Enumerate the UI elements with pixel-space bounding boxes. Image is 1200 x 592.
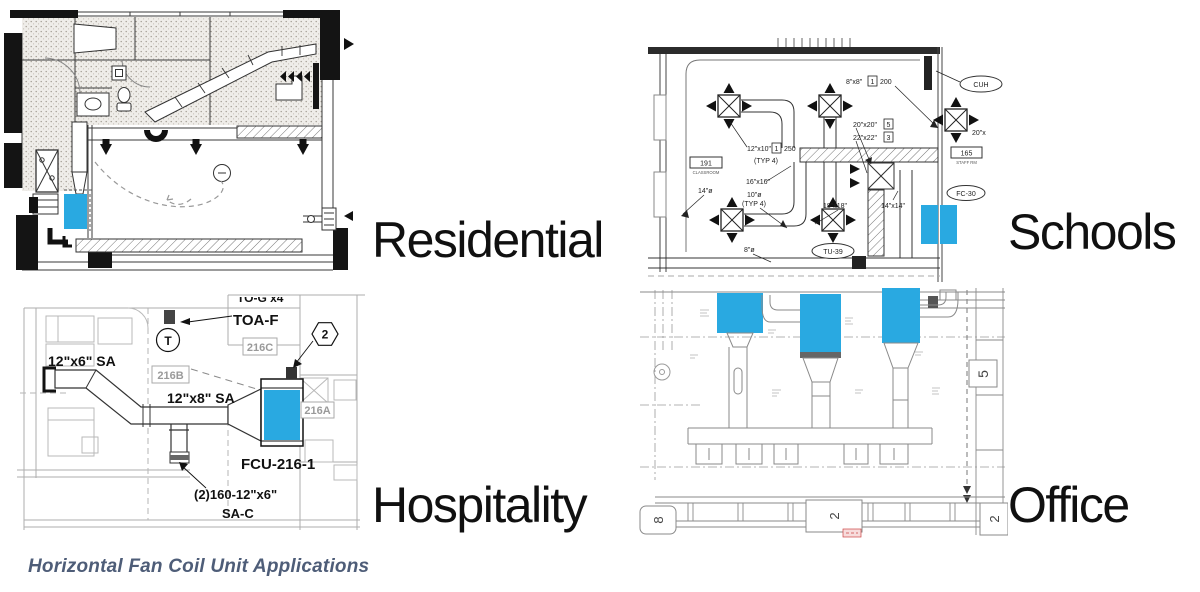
room-number: 165	[961, 151, 973, 158]
fan-coil-highlight	[717, 293, 763, 333]
room-name: STAFF RM	[956, 160, 977, 165]
branch-duct	[169, 424, 189, 452]
grid-number: 8	[651, 516, 666, 523]
flow-arrow-icon	[344, 211, 353, 221]
grid-number: 2	[827, 512, 842, 519]
diffuser-type-tag: 1	[871, 79, 875, 86]
duct-size-label: 16"x16"	[746, 179, 771, 186]
duct-size-label: 12"x10"	[747, 146, 772, 153]
duct-size-label: 8"ø	[744, 247, 755, 254]
clipped-top-label: TO-G x4	[237, 291, 284, 305]
room-number: 191	[700, 161, 712, 168]
grid-number: 2	[987, 515, 1002, 522]
residential-floor-plan	[0, 0, 360, 290]
hospitality-floor-plan: T 2 216C 216B 216A 12"x6" SA 12"x8" SA T…	[10, 288, 375, 540]
room-number: 216A	[304, 405, 330, 417]
fc-label: FC-30	[956, 191, 976, 198]
tu-label: TU-39	[823, 249, 843, 256]
toilet	[118, 88, 130, 103]
office-floor-plan: 5 8 2 2	[628, 283, 1008, 548]
keyed-note-tag: 5	[887, 122, 891, 129]
duct-size-label: 10"ø	[747, 192, 762, 199]
room-name: CLASSROOM	[693, 170, 720, 175]
fan-coil-highlight	[921, 205, 938, 244]
duct-size-label: 18"x18"	[823, 203, 848, 210]
window	[654, 95, 666, 140]
ceiling-diffusers	[100, 139, 309, 155]
toaf-label: TOA-F	[233, 312, 279, 329]
cfm-label: 200	[880, 79, 892, 86]
sensor-device	[164, 310, 175, 324]
fan-coil-highlight	[64, 194, 87, 229]
duct-size-label: 14"x14"	[881, 203, 906, 210]
figure-horizontal-fan-coil-applications: 12"x10" 1 250 (TYP 4) 16"x16" 14"ø 10"ø …	[0, 0, 1200, 592]
unit-tag-label: FCU-216-1	[241, 456, 315, 473]
duct-size-label: 8"x8"	[846, 79, 863, 86]
grid-number: 5	[975, 370, 991, 378]
duct-size-label: 22"x22"	[853, 135, 878, 142]
column-bubble	[654, 364, 670, 380]
linear-diffuser-band	[76, 239, 302, 252]
diffuser-type-tag: 1	[775, 146, 779, 153]
cuh-label: CUH	[973, 82, 988, 89]
exhaust-fan	[112, 66, 126, 80]
duct-end-cap	[44, 368, 56, 391]
grille-note-label2: SA-C	[222, 506, 254, 521]
duct-size-label: 14"ø	[698, 188, 713, 195]
keynote-number: 2	[322, 328, 329, 342]
label-residential: Residential	[372, 215, 603, 265]
label-hospitality: Hospitality	[372, 480, 586, 530]
diffuser-icon	[706, 83, 752, 129]
duct-size-label: 20"x20"	[853, 122, 878, 129]
thermostat-letter: T	[164, 334, 172, 348]
schools-floor-plan: 12"x10" 1 250 (TYP 4) 16"x16" 14"ø 10"ø …	[640, 25, 1010, 285]
duct-size-label: 12"x6" SA	[48, 353, 116, 369]
cfm-label: 250	[784, 146, 796, 153]
diffuser-icon	[807, 83, 853, 129]
duct-transition	[74, 24, 116, 53]
figure-caption: Horizontal Fan Coil Unit Applications	[28, 556, 369, 578]
fan-coil-highlight	[882, 288, 920, 343]
fan-coil-highlight	[264, 390, 300, 440]
keyed-note-tag: 3	[887, 135, 891, 142]
duct-size-label-clipped: 20"x	[972, 130, 986, 137]
label-schools: Schools	[1008, 207, 1175, 257]
typ-label: (TYP 4)	[742, 201, 766, 208]
fan-coil-highlight	[800, 294, 841, 352]
room-number: 216C	[247, 342, 273, 354]
vanity	[77, 93, 109, 116]
grille-note-label: (2)160-12"x6"	[194, 487, 277, 502]
typ-label: (TYP 4)	[754, 158, 778, 165]
room-number: 216B	[157, 370, 183, 382]
hatched-duct	[237, 126, 322, 138]
supply-arrow-icon	[344, 38, 354, 50]
top-wall	[648, 47, 940, 54]
airflow-path	[95, 162, 223, 207]
fan-coil-highlight	[940, 205, 957, 244]
duct-size-label: 12"x8" SA	[167, 390, 235, 406]
label-office: Office	[1008, 480, 1129, 530]
